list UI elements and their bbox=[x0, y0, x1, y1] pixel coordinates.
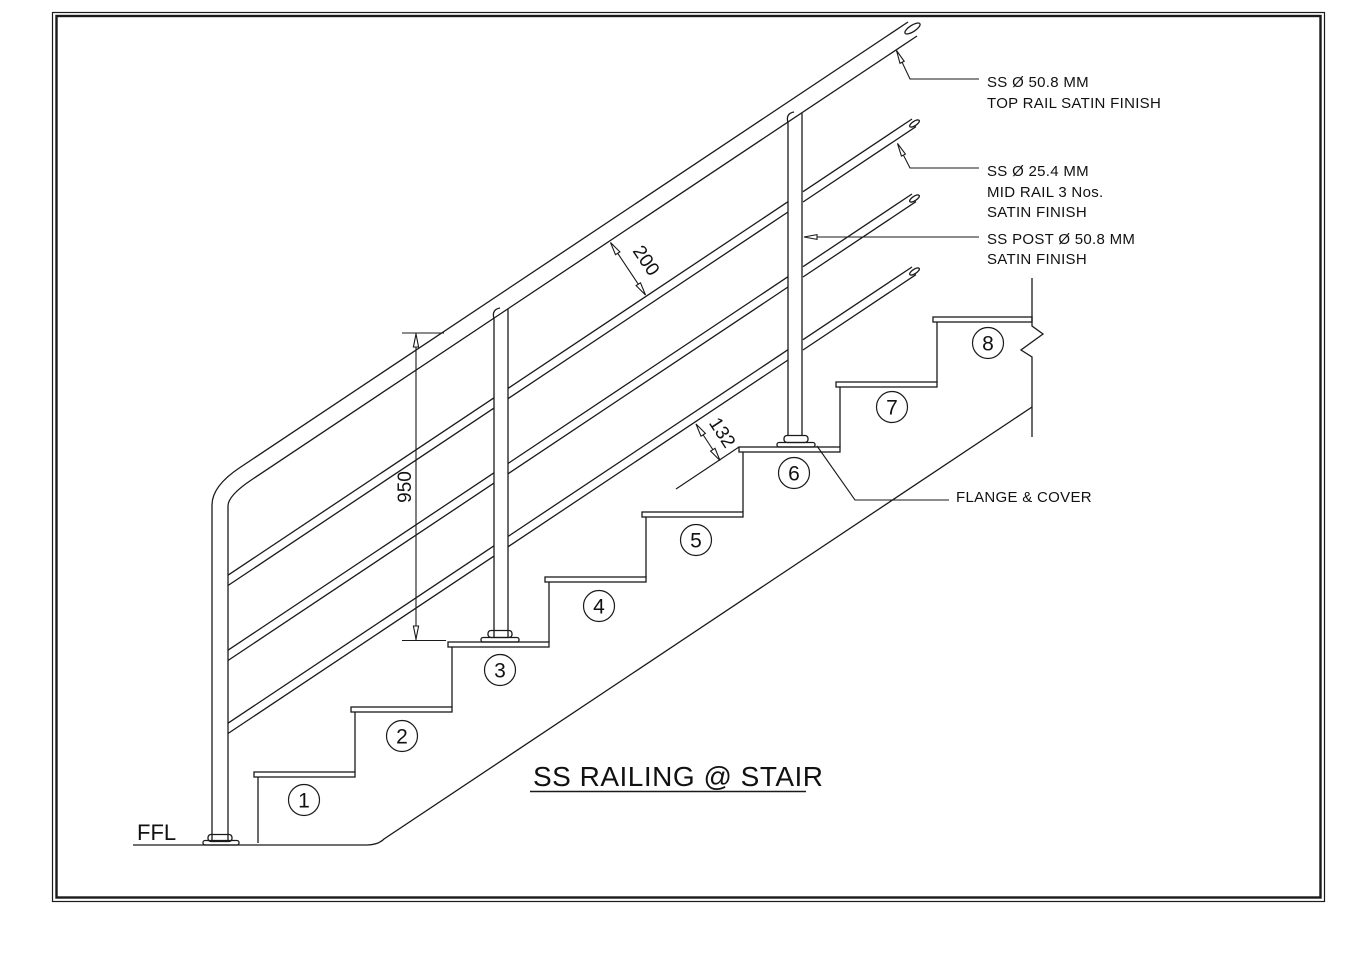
mid-rail-3-upper-line bbox=[228, 267, 912, 723]
leader-flange bbox=[817, 446, 949, 500]
post-step-6-flange-base bbox=[777, 443, 815, 448]
post-note-line-1: SS POST Ø 50.8 MM bbox=[987, 231, 1135, 248]
mid-rail-note-line-1: SS Ø 25.4 MM bbox=[987, 163, 1089, 180]
post-note-line-2: SATIN FINISH bbox=[987, 251, 1087, 268]
dimension-132-extension-line bbox=[676, 447, 739, 489]
leader-lines bbox=[804, 51, 979, 501]
mid-rail-3-lower-line bbox=[228, 275, 916, 734]
step-5-number: 5 bbox=[690, 530, 702, 553]
tread-6 bbox=[739, 447, 840, 452]
dimension-950-text: 950 bbox=[395, 471, 416, 503]
flange-cover-label: FLANGE & COVER bbox=[956, 489, 1092, 506]
drawing-sheet: SS Ø 50.8 MM TOP RAIL SATIN FINISH SS Ø … bbox=[0, 0, 1362, 962]
top-rail-note-line-2: TOP RAIL SATIN FINISH bbox=[987, 95, 1161, 112]
leader-post-arrow bbox=[804, 235, 817, 240]
mid-rail-1-lower-line bbox=[228, 127, 916, 586]
tread-7 bbox=[836, 382, 937, 387]
dimension-texts: 950 200 132 bbox=[395, 242, 739, 503]
tread-4 bbox=[545, 577, 646, 582]
leader-top-rail-arrow bbox=[897, 51, 905, 64]
dimension-200-text: 200 bbox=[628, 242, 663, 280]
step-3-number: 3 bbox=[494, 660, 506, 683]
leader-top-rail bbox=[897, 51, 980, 80]
mid-rail-note-line-2: MID RAIL 3 Nos. bbox=[987, 184, 1103, 201]
post-ffl-flange bbox=[203, 835, 239, 846]
dimension-200-arrow-bottom bbox=[636, 283, 645, 295]
top-rail-note-line-1: SS Ø 50.8 MM bbox=[987, 74, 1089, 91]
step-7-number: 7 bbox=[886, 397, 898, 420]
tread-2 bbox=[351, 707, 452, 712]
dimension-132-arrow-bottom bbox=[711, 448, 720, 460]
step-8-number: 8 bbox=[982, 333, 994, 356]
top-rail-outer-line bbox=[212, 22, 908, 841]
annotations: SS Ø 50.8 MM TOP RAIL SATIN FINISH SS Ø … bbox=[137, 74, 1161, 845]
step-6-number: 6 bbox=[788, 463, 800, 486]
post-step-3 bbox=[481, 308, 519, 642]
railing bbox=[203, 21, 922, 845]
ffl-label: FFL bbox=[137, 820, 176, 845]
mid-rail-1-upper-line bbox=[228, 119, 912, 575]
step-1-number: 1 bbox=[298, 790, 310, 813]
dimension-950-arrow-down bbox=[413, 626, 418, 639]
mid-rail-note-line-3: SATIN FINISH bbox=[987, 204, 1087, 221]
mid-rail-1 bbox=[228, 119, 920, 586]
stair-profile bbox=[133, 278, 1043, 845]
drawing-title: SS RAILING @ STAIR bbox=[533, 761, 824, 792]
leader-mid-rail bbox=[898, 144, 980, 169]
mid-rail-2 bbox=[228, 194, 920, 661]
leader-mid-rail-arrow bbox=[898, 144, 906, 157]
mid-rail-2-lower-line bbox=[228, 202, 916, 661]
title-block: SS RAILING @ STAIR bbox=[530, 761, 824, 792]
dimension-200-arrow-top bbox=[611, 243, 620, 255]
post-step-3-flange-base bbox=[481, 638, 519, 643]
post-step-3-lines bbox=[494, 309, 508, 638]
tread-8 bbox=[933, 317, 1032, 322]
stair-railing-detail-drawing: SS Ø 50.8 MM TOP RAIL SATIN FINISH SS Ø … bbox=[0, 0, 1362, 962]
dimension-132-arrow-top bbox=[696, 424, 705, 436]
tread-3 bbox=[448, 642, 549, 647]
post-step-6-lines bbox=[788, 113, 802, 435]
tread-1 bbox=[254, 772, 355, 777]
step-2-number: 2 bbox=[396, 726, 408, 749]
section-break-line bbox=[1021, 278, 1043, 437]
dimension-132-text: 132 bbox=[704, 414, 739, 452]
tread-5 bbox=[642, 512, 743, 517]
top-rail-inner-line bbox=[228, 36, 917, 841]
dimension-950-arrow-up bbox=[413, 334, 418, 347]
post-step-6-flange-collar bbox=[784, 436, 808, 443]
mid-rail-3 bbox=[228, 267, 920, 734]
step-4-number: 4 bbox=[593, 596, 605, 619]
